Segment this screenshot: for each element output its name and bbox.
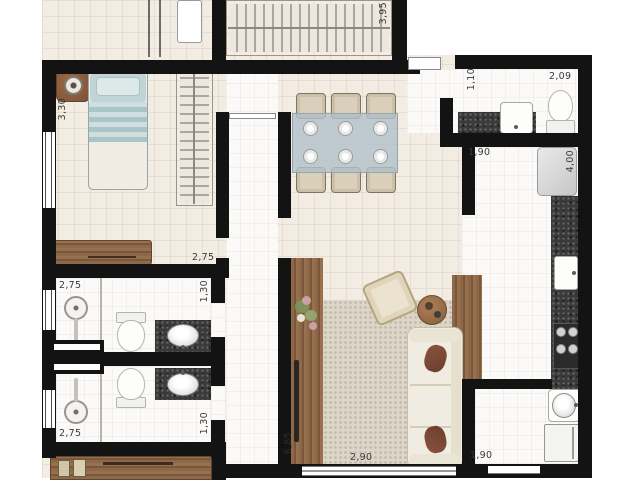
dimension-living-depth: 6,85 [283,432,294,454]
upper-room-lines [148,0,161,57]
dinner-plate [303,149,318,164]
dimension-living-width: 2,90 [350,452,372,463]
dimension-bath2-width: 2,75 [59,428,81,439]
wall-bath-bottom [42,442,225,456]
flower-pink [302,296,311,305]
dimension-bath1-width: 2,75 [59,280,81,291]
closet-rail-bedroom [193,68,195,204]
bed-pillow-inner [96,77,140,96]
balcony-door-track [302,470,456,472]
dimension-bath2-depth: 1,30 [199,412,210,434]
coffee-table-decor [425,302,433,310]
kitchen-faucet [572,271,576,275]
shaft-box [50,340,104,354]
lavabo-toilet-bowl [548,90,573,122]
flower-pink-2 [309,322,317,330]
cooktop-burner [568,344,578,354]
shaft-box [50,360,104,374]
wall-kitchen-top [440,133,592,147]
bath2-window [43,390,55,428]
dimension-entry-passage: 1,10 [466,68,477,90]
wall-upper-left-vertical [212,0,226,60]
outside-right [592,0,640,480]
lavabo-sink [500,102,533,134]
toilet-bowl [117,368,145,400]
wall-corridor-left [216,112,229,238]
dimension-bath1-depth: 1,30 [199,280,210,302]
outside-left [0,0,42,480]
wall-bath-top [42,264,225,278]
dimension-laundry-width: 1,90 [470,450,492,461]
bath2-door-opening [211,386,225,420]
sofa-backrest [451,330,461,466]
shower-head [64,400,88,424]
dimension-bedroom1-height: 3,30 [57,98,68,120]
dinner-plate [373,121,388,136]
dresser-handle [88,256,136,258]
wall-top-entry-right [455,55,592,69]
sofa-seat-line [410,384,451,386]
tv-strip [294,360,299,442]
coffee-table [417,295,447,325]
dinner-plate [373,149,388,164]
entry-door-leaf [408,57,441,70]
shower-arm [74,318,78,342]
flower-leaf [305,310,317,321]
coffee-table-decor [434,311,441,318]
closet-rail-top [228,27,390,29]
lavabo-toilet-tank [546,120,575,134]
bath2-sink [167,373,199,396]
dresser-handle [103,462,173,465]
bed-blanket [89,102,147,142]
cooktop-burner [556,344,566,354]
bedroom-dresser [52,240,152,265]
laundry-opening [488,466,540,474]
dinner-plate [338,121,353,136]
dimension-bath-block-width: 2,75 [192,252,214,263]
shower-head [64,296,88,320]
floor-corridor [226,69,278,464]
upper-room-furniture [177,0,202,43]
bath1-faucet [181,345,185,349]
sofa-armrest [409,329,461,342]
bath2-faucet [181,371,185,375]
bath1-sink [167,324,199,347]
wall-lower-room-right [212,442,226,480]
shower-screen [100,366,102,442]
shower-arm [74,378,78,402]
flower-white [297,314,305,322]
dinner-plate [338,149,353,164]
bath1-door-opening [211,303,225,337]
wall-laundry-top [462,379,552,389]
wall-right-outer [578,55,592,478]
bath1-window [43,290,55,330]
dimension-kitchen-depth: 4,00 [565,150,576,172]
floor-plan: 3,30 3,95 1,10 2,09 1,90 4,00 2,75 2,75 … [0,0,640,480]
corridor-door-leaf [229,113,276,119]
table-lamp [64,76,83,95]
wall-top [42,60,420,74]
cooktop-burner [556,327,566,337]
dinner-plate [303,121,318,136]
washing-machine-door [572,427,574,459]
wall-laundry-left [462,385,475,476]
lavabo-faucet [514,125,518,129]
dimension-kitchen-width: 1,90 [468,147,490,158]
wall-upper-right-vertical [392,0,407,60]
bedroom-window [43,132,55,208]
picture-frame [73,459,86,477]
cooktop-burner [568,327,578,337]
laundry-tank-basin [552,393,576,418]
dimension-lavabo-width: 2,09 [549,71,571,82]
wall-corridor-right [278,112,291,218]
picture-frame [58,460,70,477]
dimension-top-closet: 3,95 [378,2,389,24]
toilet-bowl [117,320,145,352]
